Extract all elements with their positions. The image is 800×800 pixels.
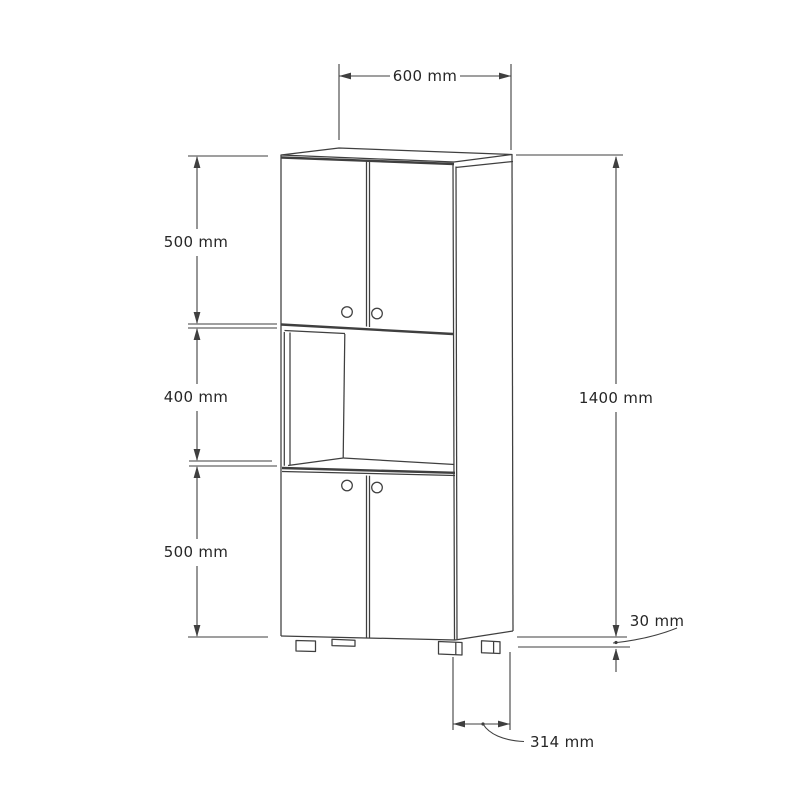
niche-floor-back-edge xyxy=(343,458,454,465)
arrowhead-up xyxy=(194,328,201,340)
dimension-label-middle-height: 400 mm xyxy=(164,388,228,406)
dimension-label-lower-height: 500 mm xyxy=(164,543,228,561)
cabinet-bottom-front-edge xyxy=(281,636,455,640)
lower-doors xyxy=(282,472,455,638)
arrowhead-right xyxy=(498,721,510,728)
side-panel-back-edge xyxy=(512,155,513,632)
dimension-label-foot-height: 30 mm xyxy=(630,612,685,630)
dimension-total-height: 1400 mm xyxy=(516,155,653,637)
dimension-label-upper-height: 500 mm xyxy=(164,233,228,251)
niche-floor-left-edge xyxy=(288,458,343,466)
upper-left-door-knob xyxy=(342,307,353,318)
arrowhead-left xyxy=(339,73,351,80)
dimension-lower-section: 500 mm xyxy=(164,466,277,637)
arrowhead-down xyxy=(194,312,201,324)
dimension-upper-section: 500 mm xyxy=(164,156,277,324)
dimension-label-depth: 314 mm xyxy=(530,733,594,751)
arrowhead-up xyxy=(613,649,620,661)
dimension-depth: 314 mm xyxy=(453,652,594,751)
foot-front-left xyxy=(296,641,316,652)
arrowhead-up xyxy=(194,156,201,168)
leader-line xyxy=(483,724,524,742)
upper-doors xyxy=(281,161,453,334)
dimension-drawing-page: 600 mm 500 mm 400 mm 500 mm 1 xyxy=(0,0,800,800)
lower-left-door-knob xyxy=(342,480,353,491)
dimension-label-top-width: 600 mm xyxy=(393,67,457,85)
cabinet-technical-drawing: 600 mm 500 mm 400 mm 500 mm 1 xyxy=(0,0,800,800)
lower-right-door-knob xyxy=(372,482,383,493)
dimension-label-total-height: 1400 mm xyxy=(579,389,653,407)
foot-front-right xyxy=(439,642,463,656)
niche-top-left-edge xyxy=(285,331,346,334)
foot-back-right xyxy=(482,641,501,654)
arrowhead-down xyxy=(194,449,201,461)
dimension-middle-section: 400 mm xyxy=(164,328,277,461)
side-panel-bottom-edge xyxy=(455,631,513,640)
side-panel-front-edge xyxy=(456,167,457,640)
cabinet-top-under-edge xyxy=(456,162,514,168)
dimension-foot-height: 30 mm xyxy=(517,612,684,672)
foot-back-left xyxy=(332,639,355,646)
cabinet-outline xyxy=(281,148,513,655)
leader-line xyxy=(613,628,677,643)
cabinet-front-right-edge xyxy=(453,164,455,640)
arrowhead-left xyxy=(453,721,465,728)
arrowhead-up xyxy=(194,466,201,478)
cabinet-feet xyxy=(296,639,500,655)
arrowhead-down xyxy=(613,625,620,637)
dimension-top-width: 600 mm xyxy=(339,64,511,150)
upper-right-door-knob xyxy=(372,308,383,319)
arrowhead-down xyxy=(194,625,201,637)
open-shelf-niche xyxy=(282,331,455,473)
niche-back-corner xyxy=(343,334,345,458)
arrowhead-right xyxy=(499,73,511,80)
arrowhead-up xyxy=(613,156,620,168)
